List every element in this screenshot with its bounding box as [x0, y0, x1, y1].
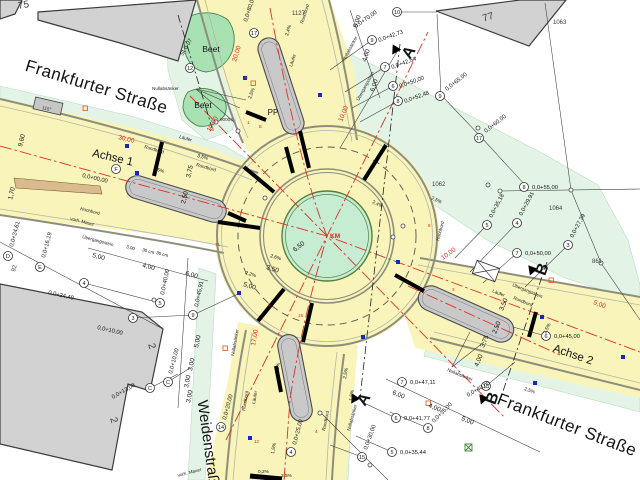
- station-chainage: 0,0+50,00: [525, 251, 551, 257]
- dim-label: 3,00: [183, 374, 193, 388]
- parcel-number: 861: [592, 259, 603, 265]
- center-km-label: KM: [330, 233, 340, 240]
- house-number: 75: [17, 0, 30, 12]
- slope-label: 2,5%: [281, 473, 293, 479]
- slope-label: 2,5%: [523, 386, 536, 396]
- station-chainage: 0,0+47,11: [410, 380, 436, 386]
- red-dim-label: 10,00: [440, 246, 458, 261]
- parcel-number: 1062: [432, 182, 446, 188]
- station-chainage: 0,0+40,00: [160, 269, 171, 296]
- slope-label: 0,2%: [258, 469, 270, 475]
- station-id: 10: [394, 10, 400, 16]
- red-point-label: 8: [428, 223, 431, 228]
- station-chainage: 0,0+16,19: [41, 232, 54, 259]
- station-id: 3: [566, 243, 569, 249]
- parcel-number: 1064: [549, 206, 563, 212]
- roundabout-plan-svg: 170,0+80,00100,0+70,0090,0+42,7370,0+42,…: [0, 0, 640, 480]
- station-id: 4: [82, 281, 85, 287]
- station-id: 9: [370, 38, 373, 44]
- station-id: 8: [396, 99, 399, 105]
- red-point-label: 12: [254, 439, 260, 444]
- station-id: 6: [394, 416, 397, 422]
- red-point-label: 3: [452, 287, 455, 292]
- station-id: C: [166, 380, 170, 386]
- section-a-top: A: [399, 43, 420, 62]
- dim-label: 30 cm: [142, 247, 155, 255]
- station-id: E: [38, 265, 42, 271]
- station-id: C: [148, 386, 152, 392]
- station-id: 17: [251, 31, 257, 37]
- station-id: 12: [187, 66, 193, 72]
- red-point-label: 16: [209, 127, 215, 132]
- small-label: Nullabsänker: [152, 86, 179, 91]
- station-id: 7: [515, 251, 518, 257]
- dim-label: 6,00: [391, 389, 406, 400]
- dim-label: 30 cm: [156, 250, 169, 258]
- station-id: 9: [191, 313, 194, 319]
- red-point-label: 71: [215, 242, 221, 247]
- station-chainage: 0,0+30,00: [363, 424, 378, 450]
- red-point-label: 6: [268, 302, 271, 307]
- station-id: 7: [383, 65, 386, 71]
- station-chainage: 0,0+10,00: [168, 348, 181, 375]
- dim-label: 5,00: [460, 415, 475, 426]
- station-id: 8: [522, 185, 525, 191]
- xbox-symbol: [465, 444, 472, 451]
- small-label: Nullabsänker: [447, 367, 474, 382]
- red-point-label: 1: [247, 120, 250, 125]
- site-plan-drawing: 170,0+80,00100,0+70,0090,0+42,7370,0+42,…: [0, 0, 640, 480]
- station-id: 5: [390, 450, 393, 456]
- red-point-label: 4: [315, 429, 318, 434]
- beet-label: Beet: [194, 100, 212, 110]
- station-id: 4: [289, 450, 292, 456]
- station-chainage: 0,0+41,77: [404, 416, 430, 422]
- station-id: 5: [158, 301, 161, 307]
- parcel-number: 92: [11, 264, 19, 273]
- station-id: 9: [438, 94, 441, 100]
- small-label: Übergangsstein: [82, 233, 115, 247]
- station-id: 17: [476, 136, 482, 142]
- station-id: 8: [426, 426, 429, 432]
- station-id: D: [6, 254, 10, 260]
- red-point-label: 15: [298, 313, 304, 318]
- station-id: 3: [131, 316, 134, 322]
- point-number: 90004: [220, 117, 233, 122]
- pp-label: PP: [268, 108, 279, 117]
- station-id: 5: [485, 223, 488, 229]
- red-point-label: E: [259, 124, 262, 129]
- station-id: 4: [515, 221, 518, 227]
- beet-label: Beet: [202, 44, 220, 54]
- station-chainage: 0,0+45,00: [554, 334, 580, 340]
- dim-label: 4,00: [141, 262, 155, 272]
- station-id: 15: [359, 455, 365, 461]
- station-id: 7: [400, 380, 403, 386]
- parcel-number: 1063: [553, 20, 567, 26]
- station-chainage: 0,0+42,73: [378, 29, 404, 44]
- station-id: 14: [218, 425, 224, 431]
- station-id: 6: [391, 84, 394, 90]
- dim-label: 5,00: [91, 252, 105, 262]
- dim-label: 3,00: [126, 244, 136, 251]
- station-chainage: 0,0+65,00: [445, 72, 469, 93]
- station-chainage: 0,0+35,44: [400, 450, 427, 456]
- station-chainage: 0,0+24,61: [9, 221, 22, 248]
- station-chainage: 0,0+55,00: [532, 185, 558, 191]
- dim-label: 4,00: [361, 48, 372, 63]
- red-point-label: 9: [245, 75, 248, 80]
